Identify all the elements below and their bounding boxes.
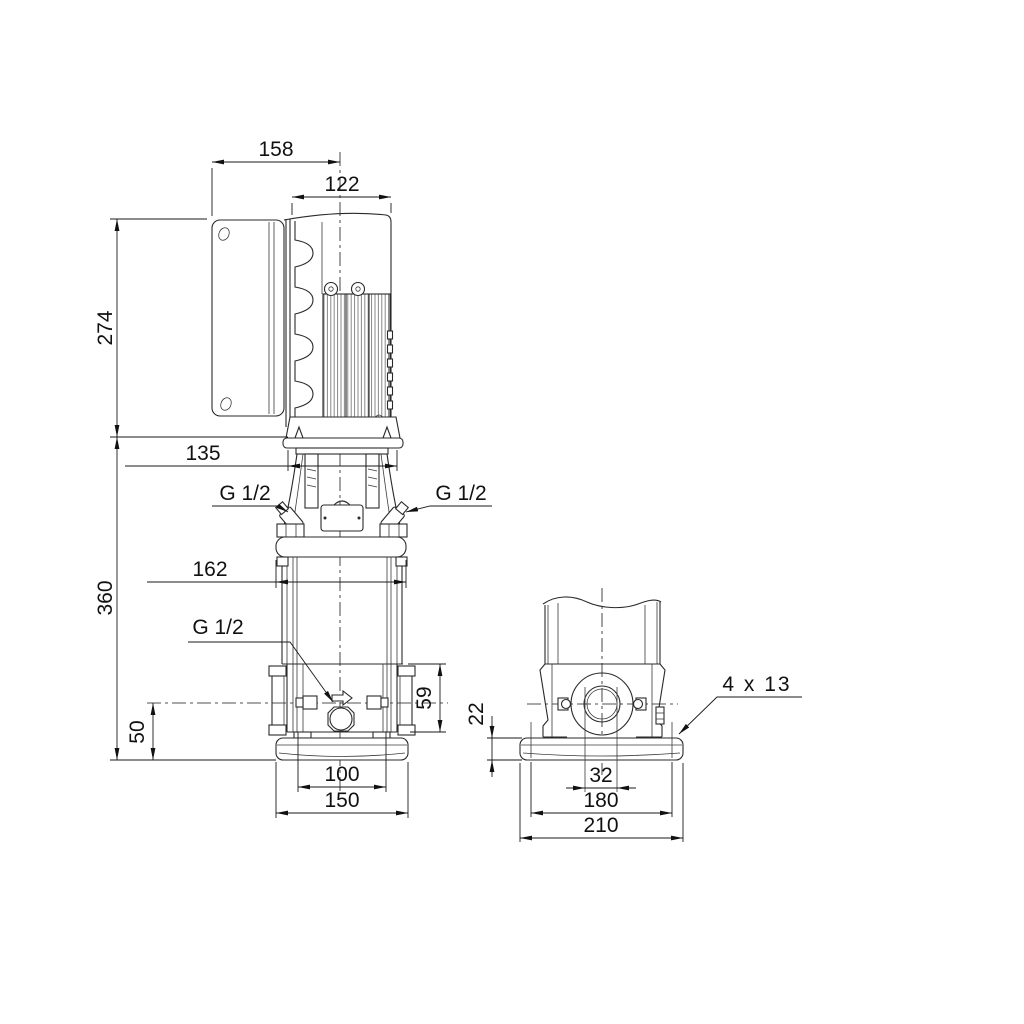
side-view	[520, 588, 683, 775]
plate-screw	[358, 517, 361, 520]
label-vent-plug-right: G 1/2	[406, 482, 492, 512]
motor-control-box	[212, 220, 284, 416]
screw-icon	[352, 283, 365, 296]
fan-cover-scalloped-edge	[295, 221, 313, 420]
port-flange-left	[269, 666, 286, 735]
screw-icon	[325, 283, 338, 296]
vent-slot	[388, 345, 393, 353]
g12-right-label: G 1/2	[435, 482, 486, 505]
dim-59-label: 59	[413, 686, 436, 709]
vent-slot	[388, 387, 393, 395]
drain-plug-boss	[328, 707, 354, 731]
label-drain-plug: G 1/2	[188, 616, 333, 702]
hex-plug-left	[277, 524, 304, 537]
dim-274-label: 274	[94, 310, 117, 345]
dim-150-label: 150	[324, 789, 359, 812]
dim-162-label: 162	[192, 558, 227, 581]
dim-32-label: 32	[589, 764, 612, 787]
pump-head-flange	[276, 537, 406, 557]
clamp-ring	[283, 438, 403, 448]
coupling-guard-slot-left	[305, 454, 318, 508]
dim-total-width: 158	[212, 138, 340, 216]
flange-boss-right	[396, 557, 407, 566]
pump-base-front	[276, 738, 408, 760]
dim-210-label: 210	[583, 814, 618, 837]
side-plug-right	[634, 698, 647, 710]
coupling-window-plate	[321, 505, 363, 531]
vent-slot	[388, 401, 393, 409]
vent-slot	[388, 359, 393, 367]
motor-body	[284, 213, 393, 427]
motor-foot-flange	[286, 417, 400, 438]
front-view	[147, 152, 448, 795]
stool-top-plate	[296, 448, 388, 454]
flange-boss-left	[277, 557, 288, 566]
heat-sink-fins	[323, 294, 390, 419]
side-plug-left	[558, 698, 571, 710]
gauge-plug-left	[296, 696, 317, 709]
sleeve-side	[545, 602, 660, 664]
dim-360-label: 360	[94, 580, 117, 615]
chamber-side	[540, 664, 665, 737]
drawing-page: 158 122 274 360 135	[0, 0, 1024, 1024]
dim-motor-width: 122	[292, 173, 391, 215]
dim-180-label: 180	[583, 789, 618, 812]
vent-slot	[388, 373, 393, 381]
hex-plug-right	[380, 524, 407, 537]
dimension-annotations: 158 122 274 360 135	[94, 138, 802, 842]
pump-chamber	[269, 664, 415, 738]
coupling-dome	[334, 501, 350, 505]
dim-base-height-side: 22	[465, 702, 522, 777]
chamber-foot-right	[373, 732, 390, 738]
vent-slot	[388, 331, 393, 339]
g12-left-label: G 1/2	[219, 482, 270, 505]
dim-port-bore: 32	[566, 760, 636, 792]
control-box-outline	[212, 220, 284, 416]
dim-100-label: 100	[324, 763, 359, 786]
motor-flange	[283, 417, 403, 454]
dim-22-label: 22	[465, 702, 488, 725]
label-bolt-holes: 4 x 13	[679, 673, 802, 734]
g12-drain-label: G 1/2	[192, 616, 243, 639]
motor-stool	[274, 454, 410, 566]
chamber-left-profile	[540, 664, 548, 737]
dim-158-label: 158	[258, 138, 293, 161]
dim-50-label: 50	[126, 720, 149, 743]
nameplate-clip	[656, 707, 664, 724]
gauge-plug-right	[367, 696, 388, 709]
dim-135-label: 135	[185, 442, 220, 465]
bolt-holes-label: 4 x 13	[722, 673, 791, 696]
dim-122-label: 122	[324, 173, 359, 196]
chamber-foot-left	[294, 732, 311, 738]
pump-dimensional-drawing: 158 122 274 360 135	[0, 0, 1024, 1024]
plate-screw	[324, 517, 327, 520]
chamber-right-profile	[657, 664, 665, 737]
baseplate-outline-side	[520, 738, 683, 760]
dim-port-center-height: 50	[126, 703, 153, 760]
coupling-guard-slot-right	[366, 454, 379, 508]
